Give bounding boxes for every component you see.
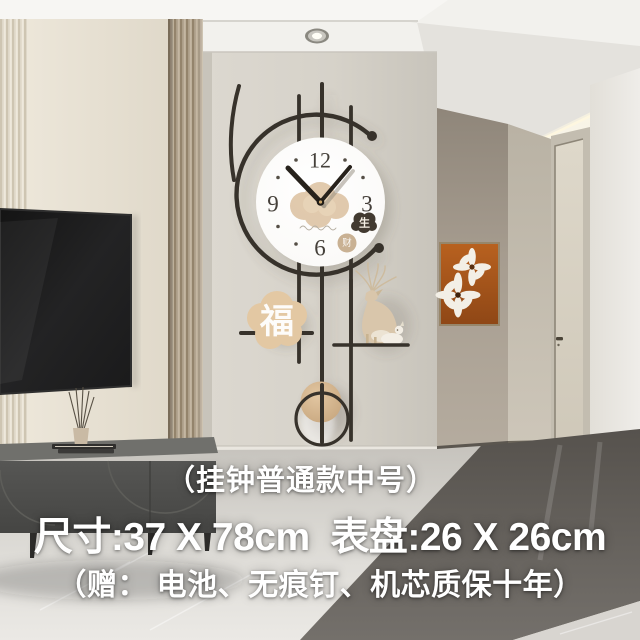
sheng-badge-text: 生 [359, 216, 370, 230]
overlay-gifts: （赠： 电池、无痕钉、机芯质保十年） [56, 560, 583, 604]
book-stack-decor [52, 444, 116, 453]
product-photo: 12 3 6 9 生 [0, 0, 640, 640]
ring-ball-bottom [374, 243, 384, 253]
overlay-product-variant: （挂钟普通款中号） [166, 457, 436, 499]
hallway-door [555, 139, 583, 448]
recessed-downlight [305, 29, 329, 44]
overlay-dimensions: 尺寸:37 X 78cm 表盘:26 X 26cm [34, 506, 606, 562]
fu-plaque-text: 福 [259, 303, 294, 341]
seal-badge: 财 [338, 234, 357, 253]
wall-art-floral [436, 242, 501, 326]
numeral-9: 9 [267, 192, 279, 217]
numeral-3: 3 [361, 192, 373, 217]
fluted-pilaster [168, 19, 203, 449]
numeral-12: 12 [309, 148, 331, 173]
door-handle [556, 337, 563, 340]
numeral-6: 6 [314, 236, 326, 261]
seal-badge-text: 财 [342, 237, 352, 249]
sheng-badge: 生 [351, 213, 377, 234]
clock-face: 12 3 6 9 生 [256, 138, 385, 267]
ring-ball-top [367, 131, 377, 141]
ceiling-soffit [0, 0, 418, 21]
